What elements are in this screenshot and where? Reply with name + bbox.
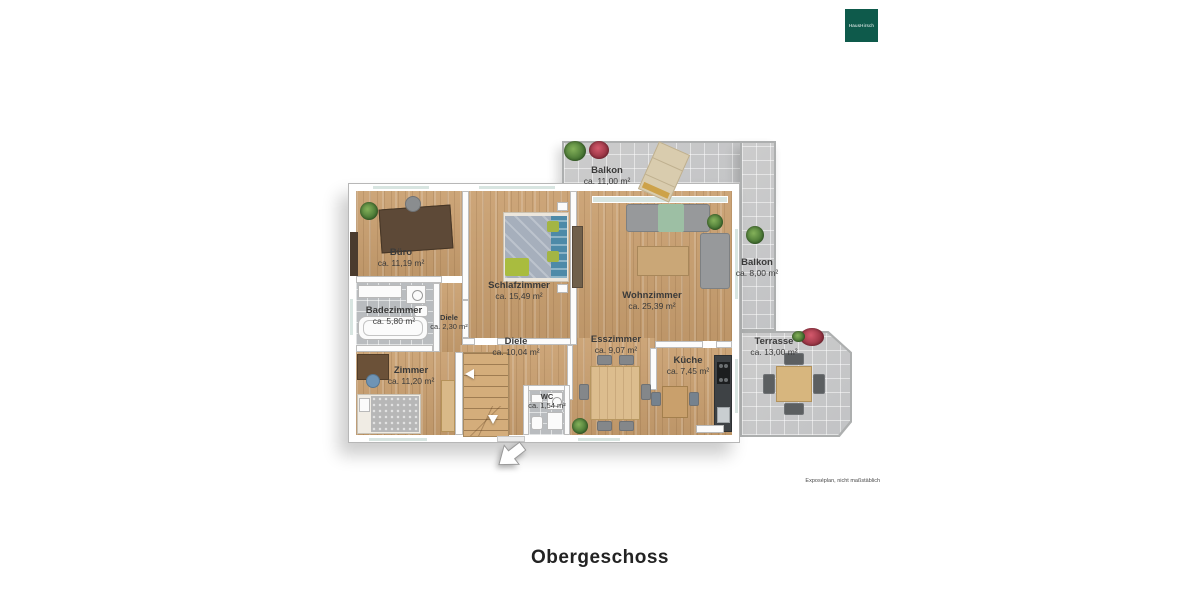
plant-icon [564, 141, 586, 161]
shelf [350, 232, 358, 276]
bathroom-sink [358, 285, 402, 298]
dining-chair [597, 355, 612, 365]
room-label-zimmer: Zimmer ca. 11,20 m² [388, 365, 435, 387]
kitchen-chair [651, 392, 661, 406]
disclaimer-text: Exposéplan, nicht maßstäblich [804, 478, 880, 484]
wall [650, 348, 657, 390]
wardrobe [441, 380, 455, 432]
toilet [531, 416, 543, 430]
room-label-diele-klein: Diele ca. 2,30 m² [430, 313, 468, 331]
plant-icon [707, 214, 723, 230]
dining-chair [619, 421, 634, 431]
kitchen-table [662, 386, 688, 418]
washing-machine [406, 285, 426, 304]
entrance-arrow-icon [486, 438, 534, 474]
window [478, 185, 556, 190]
nightstand [557, 202, 568, 211]
room-label-kueche: Küche ca. 7,45 m² [667, 355, 710, 377]
room-label-buero: Büro ca. 11,19 m² [378, 247, 425, 269]
floorplan-page: HausHirsch [0, 0, 1200, 600]
stair-direction-arrow-icon [465, 369, 474, 379]
desk-chair [405, 196, 421, 212]
coffee-table [637, 246, 689, 276]
plant-icon [746, 226, 764, 244]
terrace-chair [784, 403, 804, 415]
wall [462, 338, 475, 345]
room-label-esszimmer: Esszimmer ca. 9,07 m² [591, 334, 641, 356]
plant-icon [572, 418, 588, 434]
room-label-badezimmer: Badezimmer ca. 5,80 m² [366, 305, 423, 327]
pillow [547, 251, 559, 262]
dining-chair [579, 384, 589, 400]
terrace-door-window [734, 358, 739, 414]
wall [356, 345, 433, 352]
wall [655, 341, 703, 348]
window [372, 185, 430, 190]
nightstand [557, 284, 568, 293]
desk [379, 205, 454, 254]
wardrobe [572, 226, 583, 288]
room-label-diele: Diele ca. 10,04 m² [492, 336, 539, 358]
brand-logo-text: HausHirsch [849, 23, 874, 28]
terrace-chair [763, 374, 775, 394]
kitchen-sideboard [696, 425, 724, 433]
blanket [505, 258, 529, 276]
desk-chair [366, 374, 380, 388]
wall [462, 191, 469, 300]
wall [455, 352, 463, 435]
dining-chair [641, 384, 651, 400]
room-label-wohnzimmer: Wohnzimmer ca. 25,39 m² [622, 290, 681, 312]
wall [523, 385, 570, 391]
dining-chair [597, 421, 612, 431]
kitchen-counter [714, 355, 732, 432]
window [368, 437, 428, 442]
terrace-table [776, 366, 812, 402]
room-label-balkon-right: Balkon ca. 8,00 m² [735, 257, 779, 279]
room-label-terrasse: Terrasse ca. 13,00 m² [750, 336, 797, 358]
wall [716, 341, 732, 348]
room-label-balkon-top: Balkon ca. 11,00 m² [584, 165, 631, 187]
pillow [359, 398, 370, 412]
sofa-chaise [700, 233, 730, 289]
staircase [463, 352, 509, 437]
room-label-wc: WC ca. 1,54 m² [528, 392, 566, 410]
sofa-throw [658, 204, 684, 232]
dining-table [590, 366, 640, 420]
stair-direction-arrow-icon [488, 415, 498, 424]
window [349, 298, 354, 336]
plant-icon [360, 202, 378, 220]
floor-title: Obergeschoss [0, 547, 1200, 569]
brand-logo: HausHirsch [845, 9, 878, 42]
window [577, 437, 621, 442]
dryer [547, 412, 563, 430]
bed-duvet [371, 396, 419, 432]
flower-plant-icon [589, 141, 609, 159]
terrace-chair [813, 374, 825, 394]
wall [356, 276, 442, 283]
room-label-schlafzimmer: Schlafzimmer ca. 15,49 m² [488, 280, 550, 302]
kitchen-chair [689, 392, 699, 406]
pillow [547, 221, 559, 232]
dining-chair [619, 355, 634, 365]
